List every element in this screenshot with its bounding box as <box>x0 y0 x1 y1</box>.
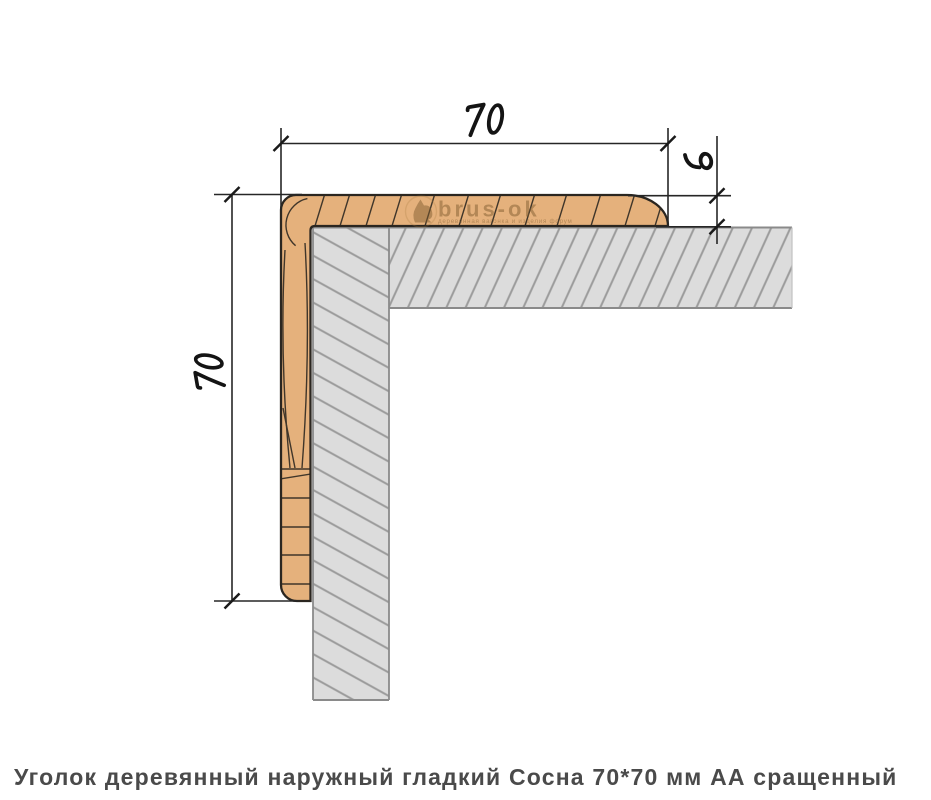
svg-text:деревянная вагонка и изделия: деревянная вагонка и изделия форум <box>438 218 572 225</box>
